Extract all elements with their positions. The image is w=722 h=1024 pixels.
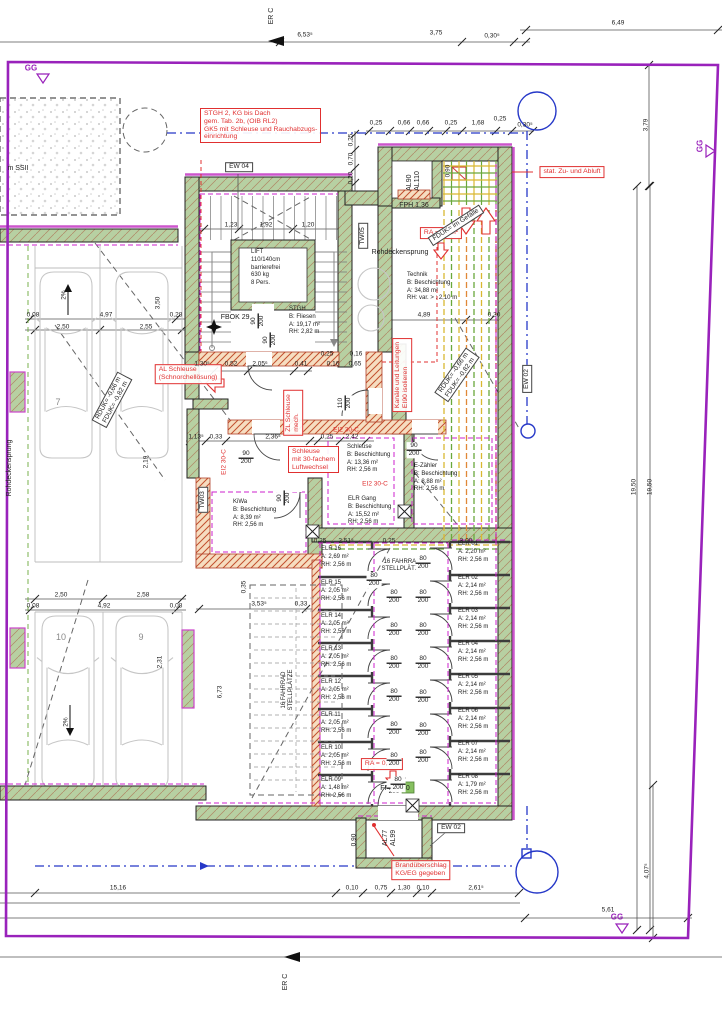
label-dim-1950b: 19,50 [646, 479, 653, 495]
label-dim-219: 2,19 [142, 456, 149, 469]
label-door-l4: 80 200 [387, 688, 402, 704]
label-dim-1516: 15,16 [110, 884, 126, 891]
label-door-r1: 80 200 [416, 555, 431, 571]
label-dim-168: 1,68 [472, 119, 485, 126]
label-door-r3: 80 200 [416, 622, 431, 638]
label-note-kanaele: Kanäle und Leitungen EI90 isolieren [392, 338, 412, 412]
label-dim-497: 4,97 [100, 311, 113, 318]
label-door-l6: 80 200 [387, 752, 402, 768]
label-door-elr16: 80 200 [367, 572, 382, 588]
label-dim-1305: 1,30⁵ [194, 360, 209, 367]
label-door-technik: 110 200 [337, 396, 353, 411]
label-gg-bottom: GG [611, 912, 623, 921]
label-er-c-bottom: ER C [282, 974, 290, 991]
label-note-schleuse-30: Schleuse mit 30-fachem Luftwechsel [288, 446, 339, 473]
label-dim-673: 6,73 [216, 686, 223, 699]
label-stall-9: 9 [138, 632, 143, 642]
label-note-al-schleuse: AL Schleuse (Schnorchellösung) [155, 364, 222, 384]
label-room-elr04: ELR 04 A: 2,14 m² RH: 2,56 m [458, 641, 488, 664]
label-room-elr03: ELR 03 A: 2,14 m² RH: 2,56 m [458, 608, 488, 631]
label-dim-030b: 0,30⁵ [517, 121, 532, 128]
label-door-kiwa: 90 200 [276, 491, 292, 506]
label-dim-065: 0,65 [349, 360, 362, 367]
label-room-elr07: ELR 07 A: 2,14 m² RH: 2,56 m [458, 741, 488, 764]
label-note-zuluft: stat. Zu- und Abluft [539, 166, 604, 178]
label-rohdeckensprung-1: Rohdeckensprung [372, 249, 429, 257]
label-er-c-top: ER C [268, 8, 276, 25]
label-dim-008b: 0,08 [27, 602, 40, 609]
label-dim-033a: 0,33 [210, 433, 223, 440]
label-room-elr14: ELR 14 A: 2,05 m² RH: 2,56 m [321, 613, 351, 636]
label-door-r5: 80 200 [416, 689, 431, 705]
label-dim-1950a: 19,50 [630, 479, 637, 495]
label-dim-407: 4,07⁵ [643, 863, 650, 878]
label-dim-041: 0,41 [295, 360, 308, 367]
label-room-elr16: ELR 16 A: 2,69 m² RH: 2,56 m [321, 546, 351, 569]
label-room-elr05: ELR 05 A: 2,14 m² RH: 2,56 m [458, 674, 488, 697]
floor-plan-page: STGH 2, KG bis Dach gem. Tab. 2b, (OIB R… [0, 0, 722, 1024]
label-room-stgh: STGH B: Fliesen A: 19,17 m² RH: 2,82 m [289, 306, 320, 337]
label-dim-016a: 0,16 [327, 360, 340, 367]
label-dim-255: 2,55 [140, 323, 153, 330]
label-door-l5: 80 200 [387, 721, 402, 737]
label-door-l2: 80 200 [387, 622, 402, 638]
label-room-elr02: ELR 02 A: 2,14 m² RH: 2,56 m [458, 575, 488, 598]
label-dim-025c: 0,25 [494, 115, 507, 122]
label-room-elr12: ELR 12 A: 2,05 m² RH: 2,56 m [321, 679, 351, 702]
label-dim-025d: 0,25 [321, 433, 334, 440]
label-dim-010a: 0,10 [346, 884, 359, 891]
label-dim-258: 2,58 [137, 591, 150, 598]
label-door-r4: 80 200 [416, 655, 431, 671]
label-room-elr09: ELR 09 A: 1,48 m² RH: 2,56 m [321, 777, 351, 800]
label-dim-489: 4,89 [418, 311, 431, 318]
label-slope-bottom: 2% [62, 717, 69, 726]
label-room-elr15: ELR 15 A: 2,05 m² RH: 2,56 m [321, 580, 351, 603]
label-rohdeckensprung-2: Rohdeckensprung [6, 440, 14, 497]
label-room-lift: LIFT 110/140cm barrierefrei 630 kg 8 Per… [251, 249, 280, 288]
label-dim-2515: 2,51⁵ [338, 537, 353, 544]
label-fph-136: FPH 1,36 [399, 202, 429, 210]
label-door-r6: 80 200 [416, 722, 431, 738]
label-room-elr-gang: ELR Gang B: Beschichtung A: 15,52 m² RH:… [348, 496, 391, 527]
label-door-l1: 80 200 [387, 589, 402, 605]
label-tw-03: TW03 [198, 487, 208, 513]
label-note-stgh2: STGH 2, KG bis Dach gem. Tab. 2b, (OIB R… [200, 108, 321, 143]
label-al77-al99: AL77 AL99 [382, 830, 398, 846]
label-dim-025a: 0,25 [370, 119, 383, 126]
label-dim-035: 0,35 [240, 581, 247, 594]
label-room-e-zaehler: E-Zähler B: Beschichtung A: 8,88 m² RH: … [414, 463, 457, 494]
label-door-r2: 80 200 [416, 589, 431, 605]
label-dim-025f: 0,25 [347, 134, 354, 147]
label-ew-02-bottom: EW 02 [437, 823, 465, 833]
label-room-elr10: ELR 10 A: 2,05 m² RH: 2,56 m [321, 745, 351, 768]
label-stall-10: 10 [56, 632, 66, 642]
label-dim-028: 0,28 [170, 311, 183, 318]
label-room-elr11: ELR 11 A: 2,05 m² RH: 2,56 m [321, 712, 351, 735]
label-dim-231: 2,31 [156, 656, 163, 669]
label-dim-250a: 2,50 [57, 323, 70, 330]
label-dim-261: 2,61⁵ [468, 884, 483, 891]
label-dim-030a: 0,30⁵ [484, 32, 499, 39]
label-dim-3535: 3,53⁵ [251, 600, 266, 607]
label-ei2-30c-3: EI2 30-C [362, 480, 388, 487]
label-note-zl-schleuse: ZL Schleuse mech. [283, 390, 303, 436]
label-ew-02-right: EW 02 [522, 365, 532, 393]
label-dim-130: 1,30 [398, 884, 411, 891]
label-dim-492: 4,92 [98, 602, 111, 609]
label-dim-649: 6,49 [612, 19, 625, 26]
label-dim-066b: 0,66 [417, 119, 430, 126]
label-m-ssii: m SSII [7, 165, 28, 173]
label-dim-2365: 2,36⁵ [265, 433, 280, 440]
label-dim-016b: 0,16 [350, 350, 363, 357]
label-dim-025h: 0,25 [383, 537, 396, 544]
label-dim-375: 3,75 [430, 29, 443, 36]
label-dim-025e: 0,25 [321, 350, 334, 357]
label-dim-066a: 0,66 [398, 119, 411, 126]
label-dim-192: 1,92 [260, 221, 273, 228]
label-fahrrad-2: 16 FAHRRAD STELLPLÄTZE [281, 669, 295, 710]
label-door-lift: 90 200 [250, 314, 266, 329]
label-room-elr13: ELR 13 A: 2,05 m² RH: 2,56 m [321, 646, 351, 669]
label-dim-090a: 0,90 [444, 165, 451, 178]
label-dim-052: 0,52 [225, 360, 238, 367]
label-rduk-fduk-right: RDUK= -0,66 m FDUK= -0,82 m [434, 348, 479, 403]
label-gg-top-left: GG [25, 63, 37, 72]
label-dim-070: 0,70 [347, 153, 354, 166]
label-door-r7: 80 200 [416, 749, 431, 765]
label-dim-008c: 0,08 [170, 602, 183, 609]
label-stall-7: 7 [55, 397, 60, 407]
label-dim-300: 3,00 [460, 537, 473, 544]
label-dim-653: 6,53⁵ [297, 31, 312, 38]
label-slope-top: 2% [60, 290, 67, 299]
label-room-elr08: ELR 08 A: 1,79 m² RH: 2,56 m [458, 774, 488, 797]
label-dim-020: 0,20 [347, 172, 354, 185]
label-room-schleuse: Schleuse B: Beschichtung A: 13,36 m² RH:… [347, 444, 390, 475]
label-door-schleuse: 90 200 [239, 450, 254, 466]
label-dim-090b: 0,90 [350, 834, 357, 847]
label-gg-right: GG [695, 140, 704, 152]
label-room-kiwa: KiWa B: Beschichtung A: 8,39 m² RH: 2,56… [233, 499, 276, 530]
label-dim-030c: 0,30 [488, 311, 501, 318]
label-dim-2056: 2,05⁶ [252, 360, 267, 367]
label-room-technik: Technik B: Beschichtung A: 34,88 m² RH: … [407, 272, 457, 303]
label-ei2-30c-2: EI2 30-C [220, 449, 227, 475]
label-door-ezaehler: 90 200 [407, 442, 422, 458]
label-fduk-gefaelle: FDUK= im Gefälle [428, 204, 485, 245]
label-dim-120: 1,20 [302, 221, 315, 228]
label-room-elr06: ELR 06 A: 2,14 m² RH: 2,56 m [458, 708, 488, 731]
label-dim-1135: 1,13⁵ [188, 433, 203, 440]
label-dim-123: 1,23 [225, 221, 238, 228]
label-rduk-fduk-left: RDUK= -0,66 m FDUK= -0,82 m [92, 372, 133, 428]
label-ew-04: EW 04 [225, 162, 253, 172]
label-dim-350: 3,50 [154, 297, 161, 310]
label-door-stgh: 90 200 [262, 333, 278, 348]
label-dim-242: 2,42 [346, 433, 359, 440]
label-dim-025b: 0,25 [445, 119, 458, 126]
label-note-brand: Brandüberschlag KG/EG gegeben [391, 860, 450, 880]
label-dim-075: 0,75 [375, 884, 388, 891]
label-dim-033b: 0,33 [295, 600, 308, 607]
label-door-elr09: 80 200 [391, 776, 406, 792]
label-door-l3: 80 200 [387, 655, 402, 671]
label-dim-008a: 0,08 [27, 311, 40, 318]
label-dim-379: 3,79 [642, 119, 649, 132]
plan-labels: STGH 2, KG bis Dach gem. Tab. 2b, (OIB R… [0, 0, 722, 1024]
label-tw-05: TW05 [358, 223, 368, 249]
label-dim-025g: 0,25 [314, 537, 327, 544]
label-dim-250b: 2,50 [55, 591, 68, 598]
label-dim-010b: 0,10 [417, 884, 430, 891]
label-al90-al110: AL90 AL110 [406, 171, 422, 191]
